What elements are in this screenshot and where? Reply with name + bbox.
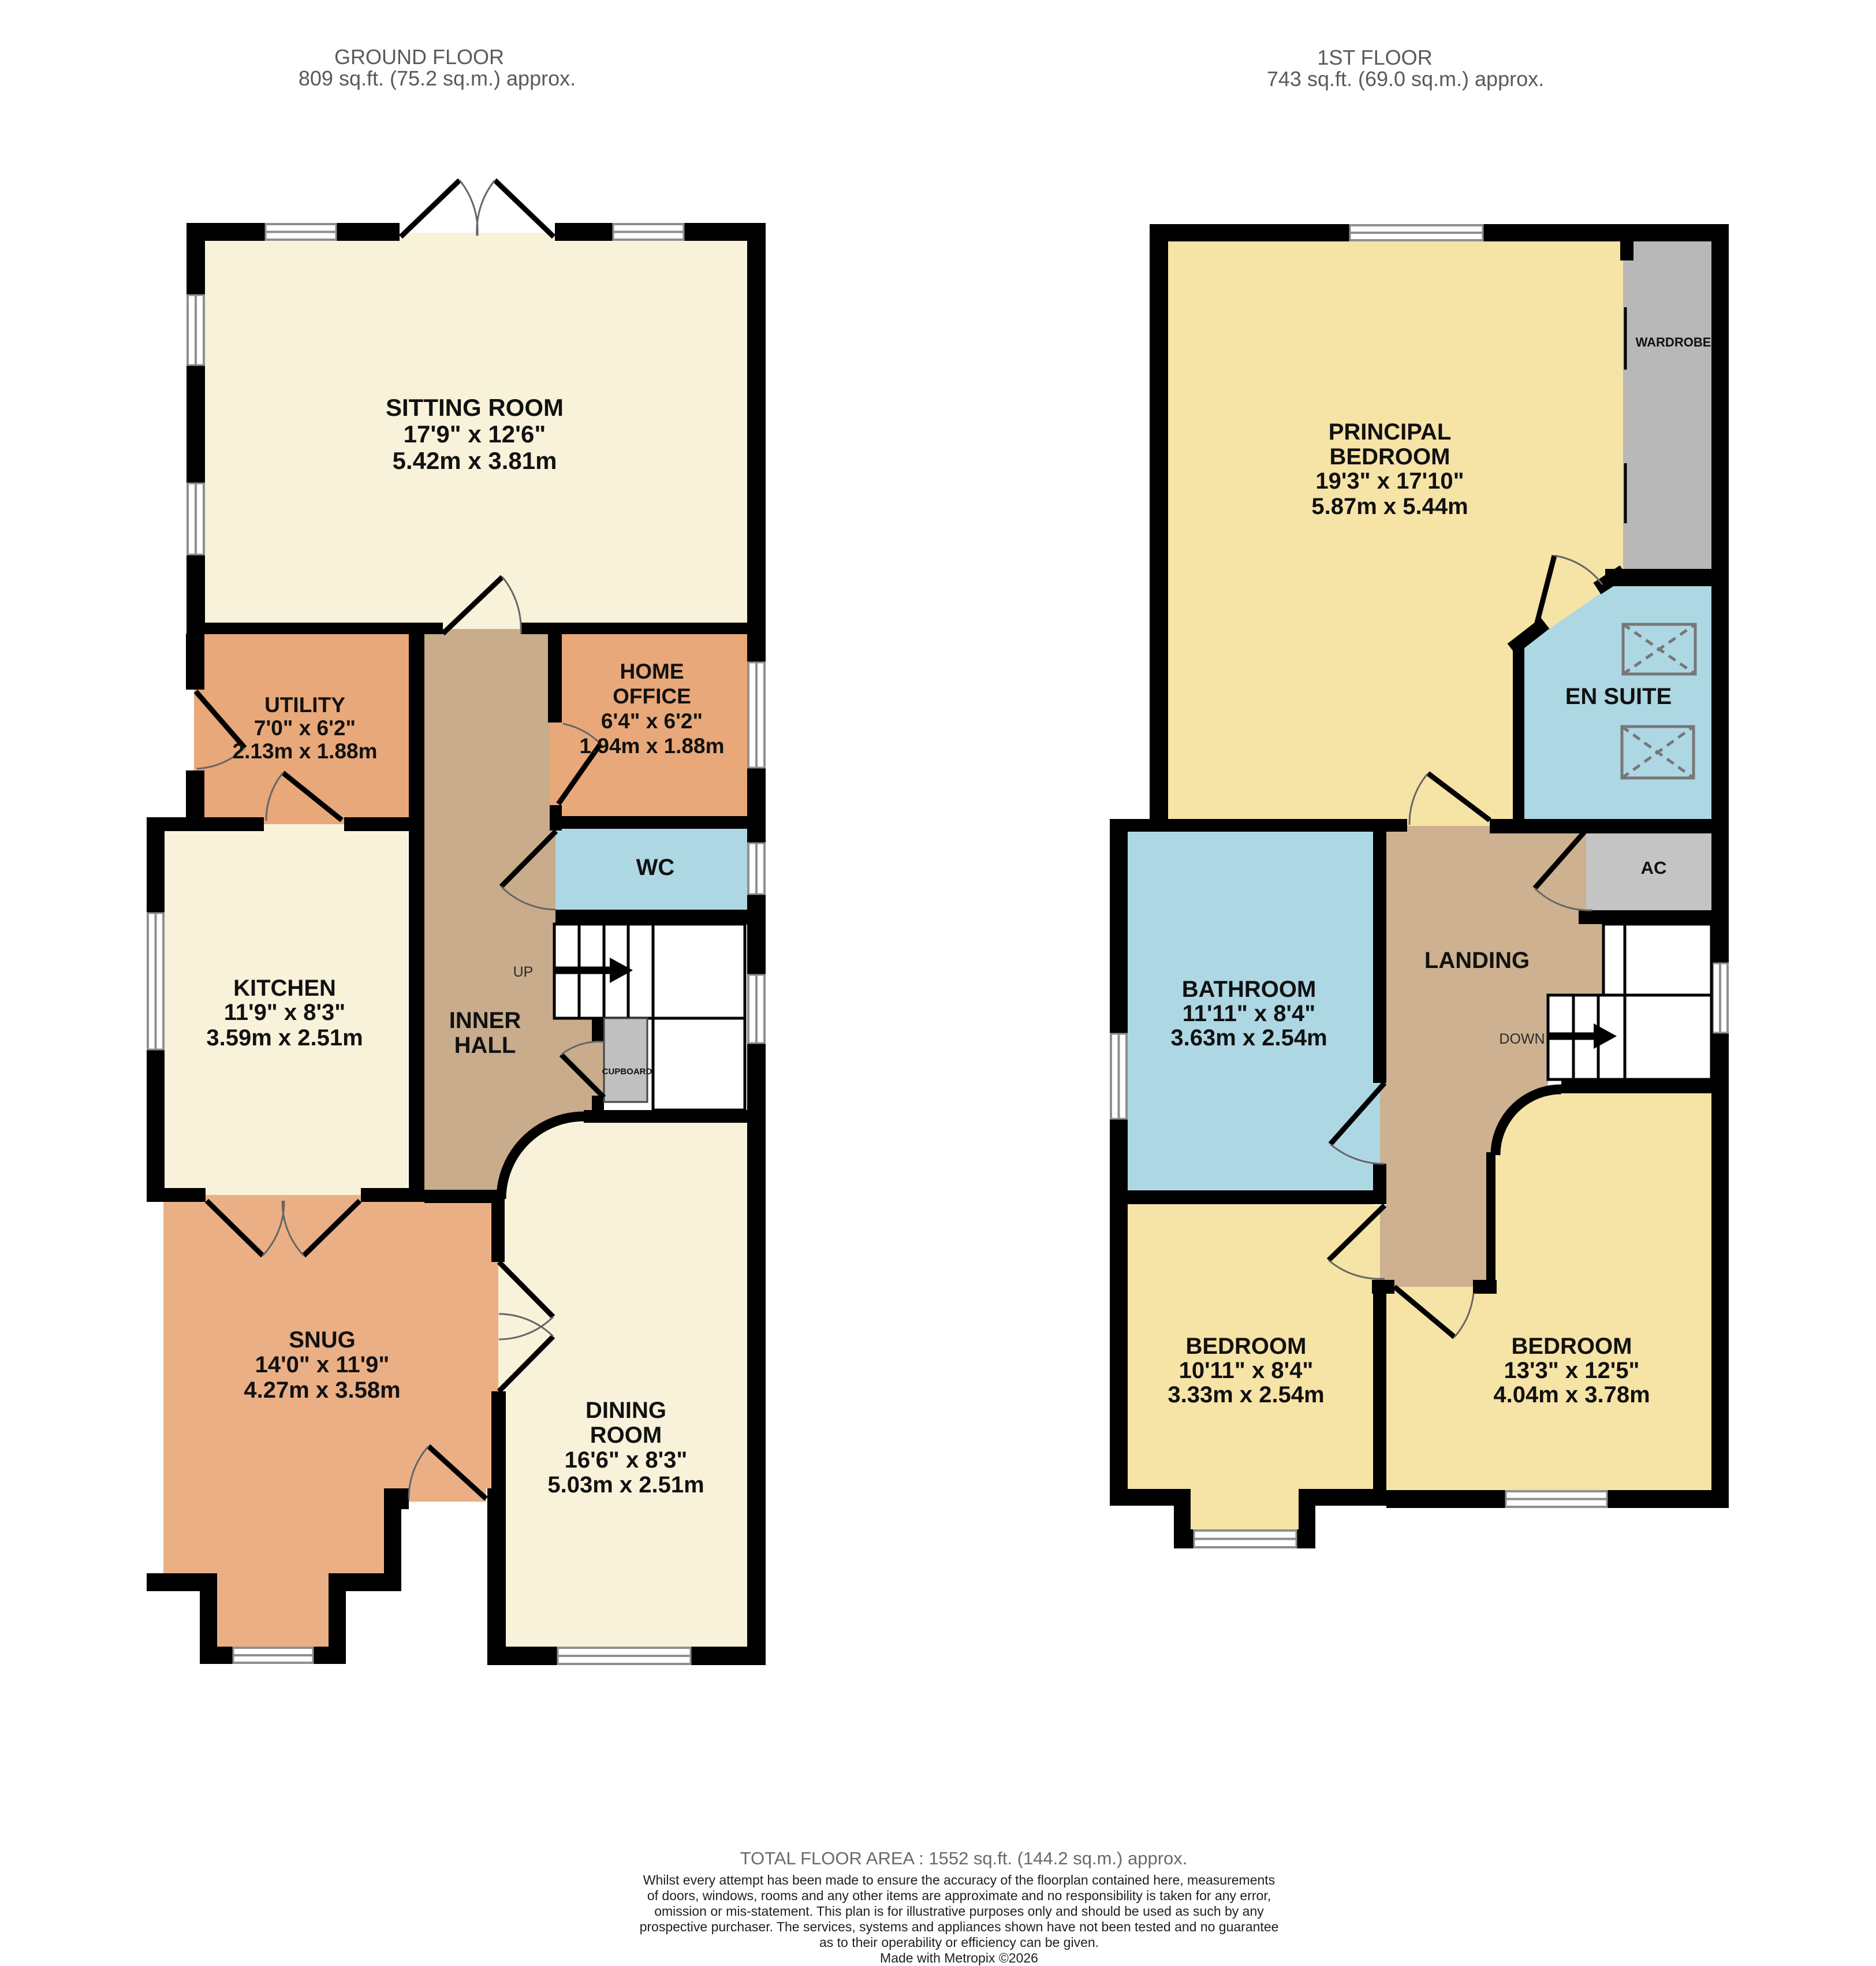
svg-text:16'6" x 8'3": 16'6" x 8'3" xyxy=(565,1447,688,1473)
svg-text:13'3" x 12'5": 13'3" x 12'5" xyxy=(1504,1358,1640,1383)
svg-text:19'3" x 17'10": 19'3" x 17'10" xyxy=(1315,468,1464,494)
svg-text:SITTING ROOM: SITTING ROOM xyxy=(386,394,564,421)
svg-text:of doors, windows, rooms and a: of doors, windows, rooms and any other i… xyxy=(647,1888,1271,1903)
svg-text:UTILITY: UTILITY xyxy=(264,693,345,717)
svg-text:UP: UP xyxy=(513,964,534,980)
svg-text:BEDROOM: BEDROOM xyxy=(1512,1334,1632,1359)
svg-text:prospective purchaser. The ser: prospective purchaser. The services, sys… xyxy=(640,1919,1279,1934)
svg-text:3.63m x 2.54m: 3.63m x 2.54m xyxy=(1170,1025,1327,1051)
svg-text:DINING: DINING xyxy=(585,1398,666,1423)
svg-text:INNER: INNER xyxy=(449,1008,521,1033)
svg-text:omission or mis-statement. Thi: omission or mis-statement. This plan is … xyxy=(654,1904,1264,1919)
svg-text:KITCHEN: KITCHEN xyxy=(233,975,336,1001)
svg-text:11'11" x 8'4": 11'11" x 8'4" xyxy=(1183,1001,1316,1026)
svg-text:5.42m x 3.81m: 5.42m x 3.81m xyxy=(393,447,557,474)
svg-text:AC: AC xyxy=(1641,858,1667,878)
svg-text:LANDING: LANDING xyxy=(1424,948,1530,973)
svg-text:GROUND FLOOR: GROUND FLOOR xyxy=(334,45,504,69)
svg-text:ROOM: ROOM xyxy=(590,1423,662,1448)
svg-text:PRINCIPAL: PRINCIPAL xyxy=(1329,419,1452,445)
svg-text:CUPBOARD: CUPBOARD xyxy=(602,1067,652,1077)
svg-text:Made with Metropix ©2026: Made with Metropix ©2026 xyxy=(880,1950,1038,1965)
svg-text:14'0" x 11'9": 14'0" x 11'9" xyxy=(255,1352,390,1377)
svg-text:HALL: HALL xyxy=(454,1033,516,1058)
svg-text:BEDROOM: BEDROOM xyxy=(1186,1334,1307,1359)
svg-text:1ST FLOOR: 1ST FLOOR xyxy=(1317,46,1432,69)
svg-text:5.03m x 2.51m: 5.03m x 2.51m xyxy=(547,1472,704,1498)
svg-text:2.13m x 1.88m: 2.13m x 1.88m xyxy=(233,739,378,763)
svg-text:10'11" x 8'4": 10'11" x 8'4" xyxy=(1179,1358,1314,1383)
svg-text:11'9" x 8'3": 11'9" x 8'3" xyxy=(224,1000,345,1025)
svg-text:3.59m x 2.51m: 3.59m x 2.51m xyxy=(206,1025,363,1051)
svg-text:7'0" x 6'2": 7'0" x 6'2" xyxy=(254,716,356,740)
svg-text:Whilst every attempt has been: Whilst every attempt has been made to en… xyxy=(643,1872,1275,1887)
svg-text:5.87m x 5.44m: 5.87m x 5.44m xyxy=(1311,494,1468,519)
svg-text:TOTAL FLOOR AREA : 1552 sq.ft.: TOTAL FLOOR AREA : 1552 sq.ft. (144.2 sq… xyxy=(740,1848,1188,1868)
svg-text:WC: WC xyxy=(636,855,675,880)
svg-text:3.33m x 2.54m: 3.33m x 2.54m xyxy=(1168,1382,1324,1408)
svg-text:BATHROOM: BATHROOM xyxy=(1182,977,1316,1002)
svg-text:4.27m x 3.58m: 4.27m x 3.58m xyxy=(244,1377,400,1403)
svg-text:SNUG: SNUG xyxy=(289,1327,356,1353)
svg-text:6'4" x 6'2": 6'4" x 6'2" xyxy=(601,709,703,733)
svg-text:BEDROOM: BEDROOM xyxy=(1330,444,1450,470)
svg-text:as to their operability or eff: as to their operability or efficiency ca… xyxy=(819,1935,1099,1950)
svg-text:1.94m x 1.88m: 1.94m x 1.88m xyxy=(580,734,725,758)
svg-text:OFFICE: OFFICE xyxy=(613,684,691,708)
svg-text:HOME: HOME xyxy=(620,660,684,683)
svg-text:WARDROBE: WARDROBE xyxy=(1636,335,1711,349)
svg-text:17'9" x 12'6": 17'9" x 12'6" xyxy=(404,420,546,448)
svg-text:EN SUITE: EN SUITE xyxy=(1565,684,1672,709)
svg-text:809 sq.ft. (75.2 sq.m.) approx: 809 sq.ft. (75.2 sq.m.) approx. xyxy=(299,66,576,90)
svg-text:4.04m x 3.78m: 4.04m x 3.78m xyxy=(1493,1382,1650,1408)
svg-text:743 sq.ft. (69.0 sq.m.) approx: 743 sq.ft. (69.0 sq.m.) approx. xyxy=(1267,67,1544,91)
svg-text:DOWN: DOWN xyxy=(1499,1031,1545,1047)
